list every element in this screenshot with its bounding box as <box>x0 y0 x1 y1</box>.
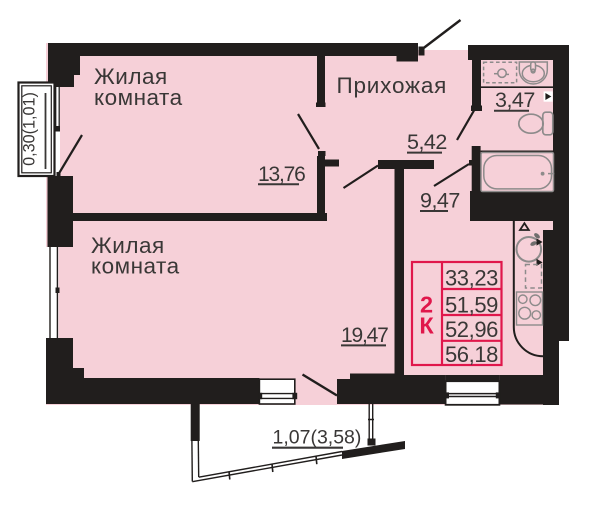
svg-text:3,47: 3,47 <box>495 88 535 112</box>
svg-text:комната: комната <box>94 85 183 110</box>
svg-text:33,23: 33,23 <box>445 266 498 291</box>
svg-text:комната: комната <box>91 254 180 279</box>
svg-text:К: К <box>419 313 434 339</box>
svg-text:51,59: 51,59 <box>445 293 498 318</box>
svg-text:0,30(1,01): 0,30(1,01) <box>21 92 39 166</box>
svg-text:13,76: 13,76 <box>258 163 305 186</box>
svg-text:5,42: 5,42 <box>407 130 447 154</box>
svg-text:52,96: 52,96 <box>445 317 498 342</box>
svg-text:56,18: 56,18 <box>445 342 498 367</box>
svg-text:19,47: 19,47 <box>341 324 388 347</box>
svg-text:1,07(3,58): 1,07(3,58) <box>273 427 362 449</box>
svg-text:Прихожая: Прихожая <box>337 73 448 98</box>
svg-text:9,47: 9,47 <box>420 189 460 213</box>
